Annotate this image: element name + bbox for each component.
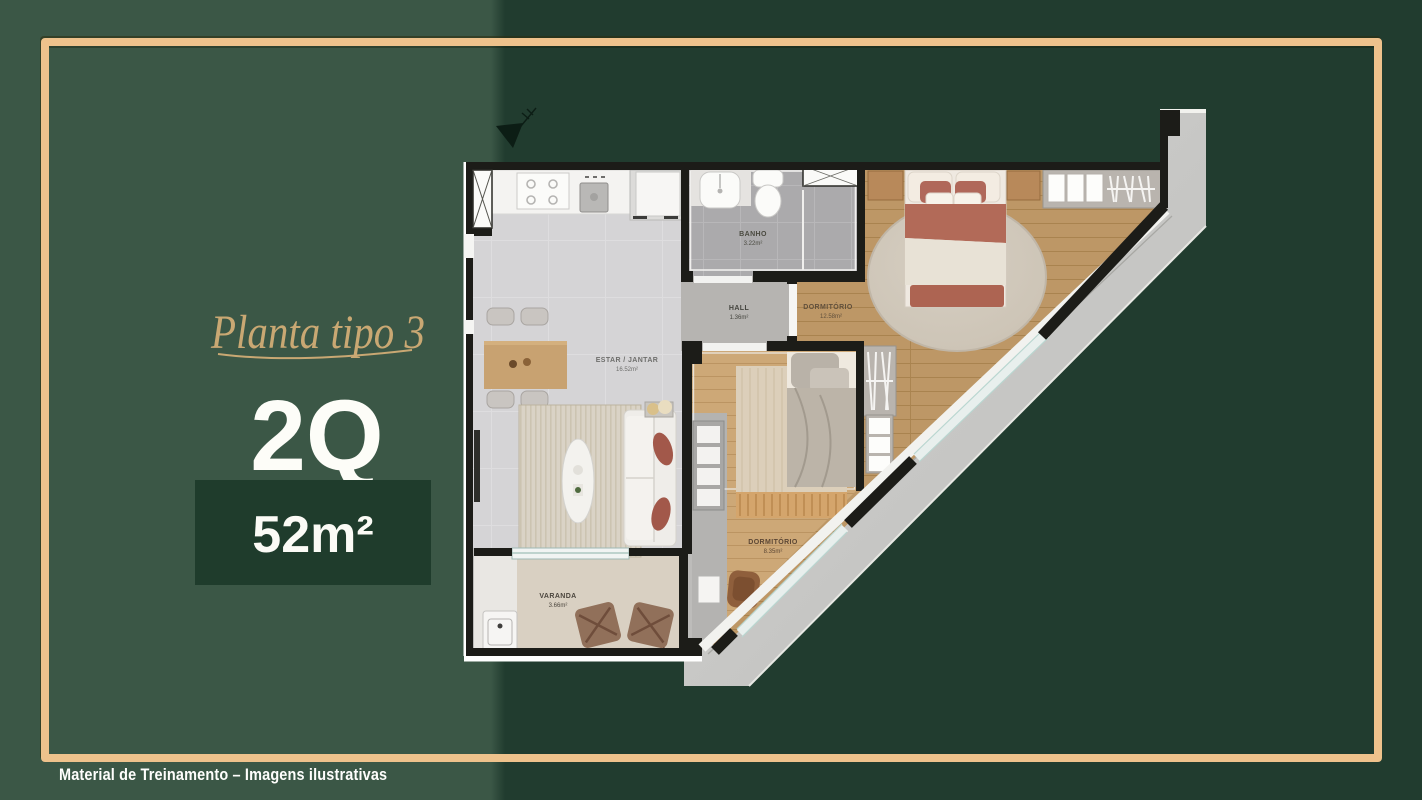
svg-text:8.35m²: 8.35m² (764, 549, 783, 555)
svg-text:Planta tipo 3: Planta tipo 3 (210, 306, 425, 359)
svg-text:DORMITÓRIO: DORMITÓRIO (803, 302, 853, 311)
svg-text:VARANDA: VARANDA (539, 593, 576, 600)
svg-text:HALL: HALL (729, 305, 750, 312)
svg-text:1.36m²: 1.36m² (730, 315, 749, 321)
svg-text:3.66m²: 3.66m² (549, 603, 568, 609)
svg-text:3.22m²: 3.22m² (744, 241, 763, 247)
svg-text:ESTAR / JANTAR: ESTAR / JANTAR (596, 357, 659, 364)
svg-text:DORMITÓRIO: DORMITÓRIO (748, 537, 798, 546)
svg-text:12.58m²: 12.58m² (820, 314, 842, 320)
svg-text:BANHO: BANHO (739, 231, 767, 238)
svg-text:16.52m²: 16.52m² (616, 367, 638, 373)
